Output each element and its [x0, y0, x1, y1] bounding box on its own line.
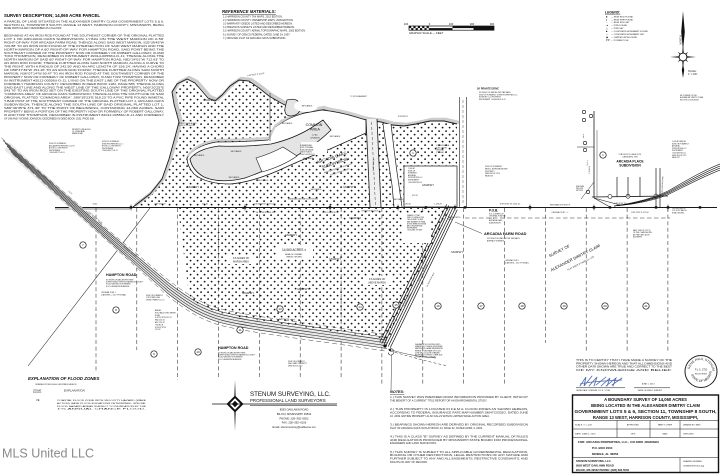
svg-text:OF JIM AND YVONNE JOHNSON, DES: OF JIM AND YVONNE JOHNSON, DESCRIBED IN … — [4, 117, 95, 120]
svg-text:411.50′: 411.50′ — [412, 195, 418, 197]
svg-text:MARSH: MARSH — [285, 233, 296, 237]
svg-text:19: 19 — [562, 304, 566, 308]
svg-text:8.5 ACRES OF: 8.5 ACRES OF — [233, 257, 250, 260]
svg-text:P.O.B.: P.O.B. — [489, 209, 498, 213]
svg-text:#2005-081774-D-J1: #2005-081774-D-J1 — [102, 150, 118, 152]
svg-text:VS 89°49′35″ 918.23′: VS 89°49′35″ 918.23′ — [256, 212, 275, 214]
svg-text:— CONCRETE MONUMENT FOUND: — CONCRETE MONUMENT FOUND — [611, 31, 648, 33]
svg-text:OF MY KNOWLEDGE AND BELIEF.: OF MY KNOWLEDGE AND BELIEF. — [576, 369, 673, 372]
svg-text:NOW OR FORMERLY KOHN PROPERTIE: NOW OR FORMERLY KOHN PROPERTIES LLC — [479, 94, 518, 96]
svg-text:OF N58°47'39″W 151.26' TO AN I: OF N58°47'39″W 151.26' TO AN IRON ROD FO… — [4, 69, 164, 72]
svg-text:PROPERTIES LLC: PROPERTIES LLC — [408, 177, 423, 179]
svg-text:14: 14 — [358, 305, 362, 309]
svg-text:SOUTHEAST CORNER OF THE PROPER: SOUTHEAST CORNER OF THE PROPERTY NOW OR … — [4, 52, 164, 55]
svg-text:13: 13 — [278, 307, 282, 311]
svg-text:1″ = 100′: 1″ = 100′ — [688, 73, 698, 76]
svg-text:14,060 ACRES ±: 14,060 ACRES ± — [282, 248, 306, 252]
svg-text:1,132.36′: 1,132.36′ — [403, 204, 411, 206]
svg-text:MARSH: MARSH — [349, 216, 360, 220]
svg-text:SECTION 11-T8S-R13W: SECTION 11-T8S-R13W — [680, 99, 699, 101]
svg-text:A BOUNDARY SURVEY OF 14,060 AC: A BOUNDARY SURVEY OF 14,060 ACRES — [604, 397, 687, 402]
svg-text:NOTES:: NOTES: — [390, 390, 405, 394]
svg-text:MARSH: MARSH — [343, 185, 354, 189]
svg-text:CUSTOMER LINE: CUSTOMER LINE — [146, 297, 161, 299]
svg-text:SAID EAST LINE AND ALONG THE W: SAID EAST LINE AND ALONG THE WEST LINE O… — [4, 86, 165, 89]
svg-text:— CONCRETE MONUMENT SET: — CONCRETE MONUMENT SET — [611, 34, 645, 36]
svg-text:64.82′: 64.82′ — [93, 204, 98, 206]
svg-text:17: 17 — [479, 304, 483, 308]
svg-text:— IRON PIPE FOUND: — IRON PIPE FOUND — [611, 19, 634, 21]
svg-text:INSTRUMENT: INSTRUMENT — [408, 180, 419, 182]
svg-text:1.) HARRISON COUNTY TAX MAPS,: 1.) HARRISON COUNTY TAX MAPS, 2012 EDITI… — [223, 16, 283, 19]
svg-text:MLS United LLC: MLS United LLC — [2, 446, 94, 461]
svg-text:#2005-081774-D-J1: #2005-081774-D-J1 — [49, 152, 65, 154]
svg-text:N 89°12′35″ E 371.30′: N 89°12′35″ E 371.30′ — [631, 212, 649, 214]
svg-text:CHORD H: CHORD H — [155, 324, 164, 326]
svg-text:REFERENCE MATERIALS:: REFERENCE MATERIALS: — [222, 9, 276, 14]
svg-text:MORE PARTICULARLY DESCRIBED AS: MORE PARTICULARLY DESCRIBED AS FOLLOWS: — [4, 27, 62, 30]
svg-text:6.) SURVEY OF GENCO FEDERAL DA: 6.) SURVEY OF GENCO FEDERAL DATED JUNE 2… — [223, 33, 291, 36]
svg-text:AN IRON ROD FOUND; THENCE FURT: AN IRON ROD FOUND; THENCE FURTHER ALONG … — [4, 62, 164, 65]
svg-text:PROPERTY NOW OR FORMERLY OF RO: PROPERTY NOW OR FORMERLY OF ROBERT GALLO… — [4, 76, 164, 79]
svg-text:RIGHT-OF-WAY FOR ARCADIA FARM: RIGHT-OF-WAY FOR ARCADIA FARM ROAD; THEN… — [4, 41, 165, 44]
svg-text:STENUM SURVEYING, LLC.: STENUM SURVEYING, LLC. — [250, 391, 331, 398]
svg-text:371.30′: 371.30′ — [202, 204, 208, 206]
svg-text:S 89°49′35″ E: S 89°49′35″ E — [154, 204, 166, 206]
svg-text:LOT 1 OF ARCADIA OAKS SUBDIVIS: LOT 1 OF ARCADIA OAKS SUBDIVISION, LYING… — [4, 38, 165, 41]
svg-text:CENTERLINE OF: CENTERLINE OF — [672, 208, 686, 210]
svg-text:IN INSTRUMENT #2012-00556U-D-J: IN INSTRUMENT #2012-00556U-D-J1, LYING O… — [4, 79, 164, 82]
svg-text:NOW OR FORMERLY: NOW OR FORMERLY — [672, 143, 690, 145]
svg-text:INSTRUMENT: INSTRUMENT — [672, 150, 683, 152]
svg-text:— PIPE SET: — PIPE SET — [611, 28, 624, 30]
svg-text:THE RIGHT, WITH A RADIUS OF 24: THE RIGHT, WITH A RADIUS OF 242.50' AND … — [4, 66, 164, 69]
svg-text:SURVEY DESCRIPTION; 14,060 ACR: SURVEY DESCRIPTION; 14,060 ACRE PARCEL — [4, 13, 100, 18]
svg-text:GPS: GPS — [631, 434, 636, 436]
svg-text:18: 18 — [520, 304, 524, 308]
svg-text:T-BAR POST AT THE SOUTHWEST CO: T-BAR POST AT THE SOUTHWEST CORNER OF TH… — [4, 100, 165, 103]
svg-text:2.) HARRISON COUNTY OWNERSHIP: 2.) HARRISON COUNTY OWNERSHIP MAPS, 2009… — [223, 19, 294, 22]
svg-text:DEED BOOK 1914: DEED BOOK 1914 — [288, 365, 302, 367]
svg-text:RANGE 13 WEST, HARRISON COUNTY: RANGE 13 WEST, HARRISON COUNTY, MISSISSI… — [593, 415, 698, 420]
svg-text:PROPERTY BEING A PORTION OF TH: PROPERTY BEING A PORTION OF THE PROPERTY… — [4, 110, 164, 113]
svg-text:#2007-88178-D-J1: #2007-88178-D-J1 — [408, 182, 422, 184]
svg-text:#2007-88178-D-J1: #2007-88178-D-J1 — [672, 153, 686, 155]
svg-text:NOW OR FORMERLY: NOW OR FORMERLY — [102, 141, 120, 143]
svg-text:7.) ORIGINAL PLAT OF ARCADIA O: 7.) ORIGINAL PLAT OF ARCADIA OAKS SUBDIV… — [223, 37, 286, 40]
svg-text:NOW OR FORMERLY: NOW OR FORMERLY — [49, 143, 67, 145]
svg-text:ARCADIA FARM ROAD: ARCADIA FARM ROAD — [484, 231, 527, 236]
svg-text:21: 21 — [644, 304, 648, 308]
svg-text:PROPERTY SHOWN HEREON AND THAT: PROPERTY SHOWN HEREON AND THAT ALL DIMEN… — [576, 362, 672, 365]
svg-text:BOOK LLC PROPERTY: BOOK LLC PROPERTY — [102, 146, 122, 148]
svg-text:PROPERTIES LLC: PROPERTIES LLC — [672, 148, 687, 150]
svg-text:HAMPTON ROAD: HAMPTON ROAD — [106, 273, 137, 277]
svg-text:SUBDIVISION; THENCE ALONG THE: SUBDIVISION; THENCE ALONG THE SOUTH LINE… — [4, 104, 165, 107]
svg-text:EXPLANATION OF FLOOD ZONES: EXPLANATION OF FLOOD ZONES — [28, 376, 99, 381]
svg-text:MRS N. JB PEDEN BROWN: MRS N. JB PEDEN BROWN — [485, 168, 508, 170]
svg-text:NOW OR FORMERLY: NOW OR FORMERLY — [485, 166, 503, 168]
svg-text:MOBILE, AL 36652: MOBILE, AL 36652 — [592, 452, 619, 456]
svg-text:P.O. BOX 2004: P.O. BOX 2004 — [592, 446, 613, 450]
svg-text:AREA: AREA — [310, 128, 320, 132]
svg-text:29.23′: 29.23′ — [448, 219, 453, 221]
svg-text:— POWER POLE: — POWER POLE — [611, 40, 629, 42]
svg-text:844 REFER: 844 REFER — [633, 237, 643, 239]
svg-text:S.E. CORNER OF: S.E. CORNER OF — [489, 214, 505, 216]
svg-text:TONI THOMPSON, DESCRIBED IN IN: TONI THOMPSON, DESCRIBED IN INSTRUMENT #… — [4, 55, 165, 58]
svg-text:BEGINNING AT AN IRON ROD FOUND: BEGINNING AT AN IRON ROD FOUND AT THE SO… — [4, 35, 164, 38]
svg-text:MARSH: MARSH — [203, 98, 214, 102]
svg-text:BOOK LLC PROPERTY: BOOK LLC PROPERTY — [49, 148, 69, 150]
svg-text:COMMON: COMMON — [306, 123, 323, 127]
svg-text:10: 10 — [196, 350, 200, 354]
svg-text:ZONE: ZONE — [32, 389, 42, 393]
svg-text:SCALE:: SCALE: — [688, 70, 697, 73]
svg-text:DEVELOPMENT LLC of: DEVELOPMENT LLC of — [146, 299, 165, 301]
svg-text:GRAPHIC SCALE — FEET: GRAPHIC SCALE — FEET — [409, 31, 443, 35]
svg-text:MARSH: MARSH — [187, 185, 198, 189]
svg-text:13.42′ N 89°49′35″ E: 13.42′ N 89°49′35″ E — [322, 212, 338, 214]
svg-text:PROPERTY: PROPERTY — [485, 171, 495, 173]
svg-text:ARCADIA PLACE: ARCADIA PLACE — [616, 160, 644, 164]
svg-text:NOW OR: NOW OR — [408, 170, 416, 172]
svg-text:▲: ▲ — [606, 24, 608, 27]
svg-text:P.P.: P.P. — [606, 39, 610, 42]
svg-text:— IRON ROD FOUND: — IRON ROD FOUND — [611, 16, 634, 18]
svg-text:A PARCEL OF LAND SITUATED IN T: A PARCEL OF LAND SITUATED IN THE ALEXAND… — [4, 21, 164, 24]
svg-text:VS 89°49′35″ W 974.13′: VS 89°49′35″ W 974.13′ — [254, 204, 276, 206]
svg-text:11: 11 — [238, 328, 241, 332]
svg-text:NE CORNER OF THE: NE CORNER OF THE — [680, 95, 698, 97]
svg-text:HAMPTON ROAD: HAMPTON ROAD — [218, 346, 249, 350]
svg-text:IN SHORT LLC PROPERTY: IN SHORT LLC PROPERTY — [479, 97, 502, 99]
svg-text:56' PRIVATE DRIVE: 56' PRIVATE DRIVE — [477, 88, 499, 91]
svg-text:JUNE 1, 2013: JUNE 1, 2013 — [641, 384, 655, 386]
svg-text:LEGEND:: LEGEND: — [605, 11, 620, 15]
svg-text:S89°49'35″E 371.30' TO THE POI: S89°49'35″E 371.30' TO THE POINT OF BEGI… — [4, 107, 164, 110]
svg-text:5.) HARRISON COUNTY AERIAL TOP: 5.) HARRISON COUNTY AERIAL TOPOGRAPHIC M… — [223, 30, 306, 33]
svg-text:THIS IS TO CERTIFY THAT I HAVE: THIS IS TO CERTIFY THAT I HAVE MADE A SU… — [576, 359, 673, 362]
svg-text:— PIPE FOUND: — PIPE FOUND — [611, 25, 628, 27]
svg-text:NOW OR FORMERLY: NOW OR FORMERLY — [288, 361, 306, 363]
svg-text:DEED BOOK 1274: DEED BOOK 1274 — [485, 173, 500, 175]
svg-text:SECTION 11, TOWNSHIP 8 SOUTH,: SECTION 11, TOWNSHIP 8 SOUTH, RANGE 13 W… — [4, 24, 164, 27]
svg-text:FORMERLY HARRISON COUNTY, DESC: FORMERLY HARRISON COUNTY, DESCRIBED IN D… — [4, 83, 164, 86]
svg-text:S 89°49′35″ W: S 89°49′35″ W — [614, 203, 626, 205]
svg-text:N 89°49′35″E 543.13′: N 89°49′35″E 543.13′ — [361, 211, 379, 213]
svg-text:HOMI PROPERTIES LLC #: HOMI PROPERTIES LLC # — [102, 143, 123, 145]
svg-text:— IRON ROD SET: — IRON ROD SET — [611, 22, 630, 24]
svg-text:1,139.28′: 1,139.28′ — [434, 204, 442, 206]
svg-text:INSTRUMENT: INSTRUMENT — [102, 148, 114, 150]
svg-text:INSTRUMENT #2006-68178-D-J1: INSTRUMENT #2006-68178-D-J1 — [479, 99, 506, 101]
svg-text:SUBDIVISION: SUBDIVISION — [619, 164, 641, 168]
svg-text:16: 16 — [436, 304, 440, 308]
svg-text:CHECKED: CHECKED — [683, 434, 694, 436]
svg-text:P.L.S. 2750: P.L.S. 2750 — [695, 369, 708, 372]
svg-text:III AND TONI THOMPSON, DESCRIB: III AND TONI THOMPSON, DESCRIBED IN INST… — [4, 114, 165, 117]
svg-text:ABOVE MARSH: ABOVE MARSH — [368, 281, 386, 284]
svg-text:S 89°49′35″ W 1,291.45′: S 89°49′35″ W 1,291.45′ — [500, 204, 521, 206]
svg-text:4.) PREVIOUS SURVEYS LISTED AN: 4.) PREVIOUS SURVEYS LISTED AND DESCRIBE… — [223, 26, 295, 29]
svg-text:13080R/DWG#451.dwg: 13080R/DWG#451.dwg — [683, 466, 704, 468]
svg-text:"COMMONS AREA" OF ARCADIA OAKS: "COMMONS AREA" OF ARCADIA OAKS SUBDIVISI… — [4, 93, 164, 96]
svg-text:N 58°47′39″W: N 58°47′39″W — [155, 327, 166, 329]
svg-text:GOVERNMENT LOTS 5 & 6, SECTION: GOVERNMENT LOTS 5 & 6, SECTION 11, TOWNS… — [574, 409, 716, 414]
svg-text:MARSH AREA: MARSH AREA — [233, 260, 249, 263]
svg-text:151.26′: 151.26′ — [155, 329, 161, 331]
svg-text:3.) WARRANTY DEEDS LISTED AND: 3.) WARRANTY DEEDS LISTED AND DESCRIBED … — [223, 23, 293, 26]
svg-text:MARGIN, N36°07'14″W 93.47' TO: MARGIN, N36°07'14″W 93.47' TO AN IRON RO… — [4, 72, 165, 75]
svg-text:◉: ◉ — [606, 36, 608, 39]
svg-text:PROFESSIONAL LAND SURVEYORS: PROFESSIONAL LAND SURVEYORS — [250, 398, 326, 403]
svg-text:5' NORTH: 5' NORTH — [589, 165, 591, 174]
svg-text:BEING LOCATED IN THE ALEXANDER: BEING LOCATED IN THE ALEXANDER DIMITRY C… — [591, 403, 700, 408]
svg-text:#2007-00878-D-J1: #2007-00878-D-J1 — [300, 154, 315, 156]
svg-text:8.5 ACRES OF: 8.5 ACRES OF — [369, 278, 386, 281]
svg-text:20: 20 — [603, 304, 607, 308]
svg-text:MARSH: MARSH — [422, 183, 433, 187]
svg-text:MARSH: MARSH — [297, 287, 308, 291]
svg-text:EXPLANATION: EXPLANATION — [64, 389, 86, 393]
svg-text:MARSH: MARSH — [451, 250, 462, 254]
svg-text:MARSH: MARSH — [329, 257, 340, 261]
svg-text:DEED BOOK 1274: DEED BOOK 1274 — [672, 155, 686, 157]
svg-text:△: △ — [606, 27, 608, 30]
svg-text:FOR: ARCADIA PROPERTIES, LLC: FOR: ARCADIA PROPERTIES, LLC., C/O ERIK … — [578, 440, 659, 444]
svg-text:ORIGINAL PLATTED "COMMONS AREA: ORIGINAL PLATTED "COMMONS AREA", S89°39′… — [4, 97, 165, 100]
svg-text:NORTH MARGIN OF SAID 60' RIGHT: NORTH MARGIN OF SAID 60' RIGHT-OF-WAY FO… — [4, 59, 164, 62]
svg-text:S 46°11′44″W 251.70′: S 46°11′44″W 251.70′ — [155, 317, 173, 319]
svg-text:FORMERLY: FORMERLY — [408, 173, 418, 175]
svg-text:OTHER DATA SHOWN ARE TRUE AND: OTHER DATA SHOWN ARE TRUE AND CORRECT TO… — [576, 366, 673, 369]
svg-text:NOW OR FORMERLY: NOW OR FORMERLY — [146, 295, 164, 297]
svg-text:543.76' TO AN IRON ROD SET ON: 543.76' TO AN IRON ROD SET ON THE EXISTI… — [4, 90, 164, 93]
svg-text:REGISTERED: REGISTERED — [695, 374, 708, 376]
svg-text:NORTH MARGIN OF A 60' RIGHT-OF: NORTH MARGIN OF A 60' RIGHT-OF-WAY FOR H… — [4, 48, 165, 51]
svg-text:15: 15 — [394, 303, 398, 307]
svg-text:SUBDIVISION: SUBDIVISION — [489, 222, 501, 224]
svg-text:MARSH: MARSH — [242, 291, 253, 295]
svg-text:INSTRUMENT: INSTRUMENT — [49, 150, 61, 152]
svg-text:720.88' TO AN IRON ROD FOUND A: 720.88' TO AN IRON ROD FOUND AT THE INTE… — [4, 45, 165, 48]
svg-text:LOT 1: LOT 1 — [489, 218, 494, 220]
